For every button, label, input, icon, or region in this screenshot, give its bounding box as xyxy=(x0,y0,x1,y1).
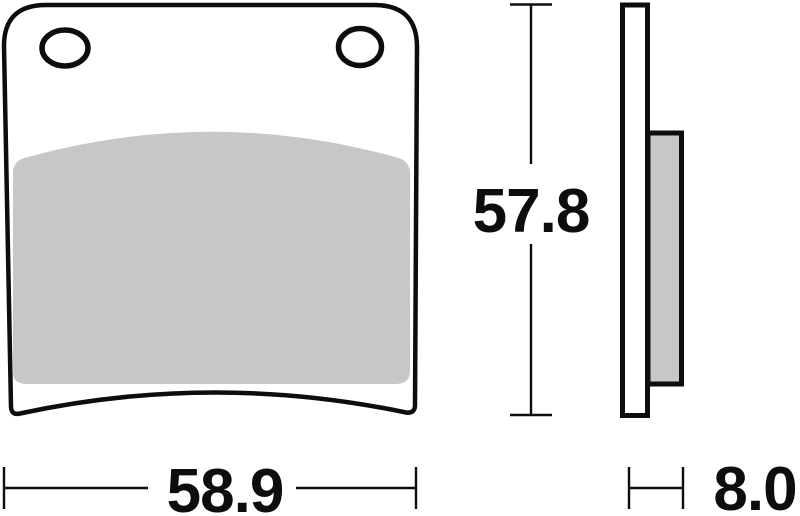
backing-plate-side xyxy=(623,5,648,416)
height-dimension-label: 57.8 xyxy=(473,177,590,246)
width-dimension-label: 58.9 xyxy=(167,457,284,516)
thickness-dimension xyxy=(629,467,683,509)
brake-pad-side-view xyxy=(623,5,682,416)
technical-drawing-canvas: 57.8 58.9 8.0 xyxy=(0,0,800,516)
mounting-hole-left-icon xyxy=(42,30,88,66)
thickness-dimension-label: 8.0 xyxy=(713,455,796,516)
drawing-page: 57.8 58.9 8.0 xyxy=(0,0,800,516)
mounting-hole-right-icon xyxy=(339,29,382,66)
friction-material-side xyxy=(648,133,682,384)
friction-material-front xyxy=(13,132,410,384)
brake-pad-front-view xyxy=(4,5,417,414)
